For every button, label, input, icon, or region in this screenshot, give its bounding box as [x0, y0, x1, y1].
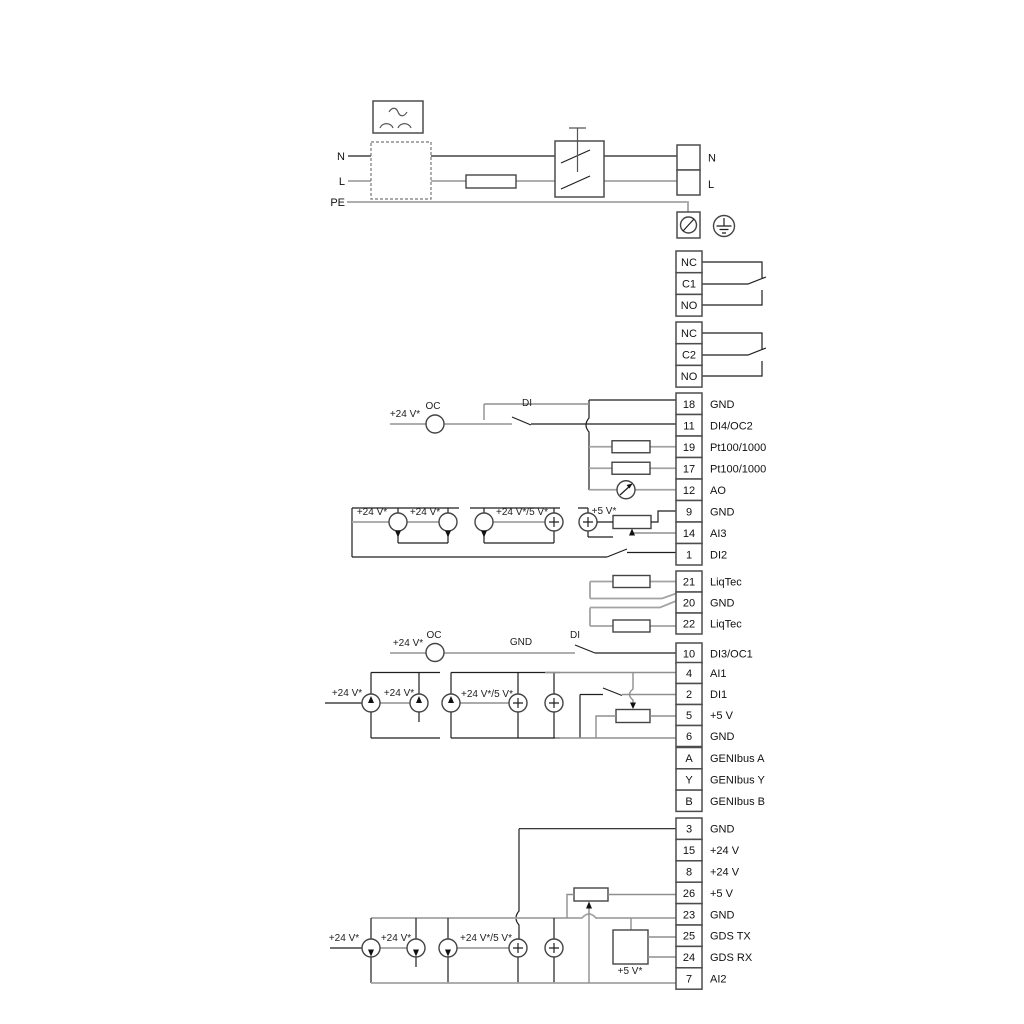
terminal-label: GND	[710, 824, 735, 836]
terminal-number: A	[685, 753, 693, 765]
terminal-number: 20	[683, 598, 695, 610]
relay1-contact	[702, 262, 766, 305]
terminal-number: 19	[683, 442, 695, 454]
power-label-n_right: N	[708, 153, 716, 165]
di3-switch	[575, 645, 676, 653]
down-arrowhead	[395, 531, 401, 538]
terminal-number: 14	[683, 528, 695, 540]
liqtec-resistor-22	[613, 620, 650, 632]
wire-labels: NLPENL+24 V*OCDI+24 V*+24 V*+24 V*/5 V*+…	[329, 151, 716, 977]
terminal-strip: 18GND11DI4/OC219Pt100/100017Pt100/100012…	[676, 145, 766, 989]
terminal-number: Y	[685, 774, 693, 786]
terminal-number: 21	[683, 577, 695, 589]
wire-label-v24_5: +24 V*/5 V*	[460, 933, 512, 944]
wiper-arrowhead	[630, 703, 636, 710]
open-collector-circle	[426, 415, 444, 433]
wire-label-v24_5: +24 V*/5 V*	[496, 507, 548, 518]
relay2-contact	[702, 333, 766, 376]
wiper-arrowhead	[586, 902, 592, 909]
wire-label-oc: OC	[427, 630, 442, 641]
terminal-label: AI3	[710, 528, 727, 540]
terminal-label: +24 V	[710, 845, 740, 857]
terminal-label: Pt100/1000	[710, 463, 766, 475]
di4-section	[390, 400, 676, 499]
optional-device-dashed-box	[371, 142, 431, 199]
wire-label-v24: +24 V*	[393, 638, 423, 649]
gnd3-wire	[516, 829, 676, 939]
terminal-label: LiqTec	[710, 619, 742, 631]
terminal-number: 6	[686, 731, 692, 743]
terminal-number: 5	[686, 710, 692, 722]
terminal-number: 18	[683, 399, 695, 411]
stubs	[416, 918, 554, 983]
relay-terminal-number: C1	[682, 279, 696, 291]
wire-label-v24_5: +24 V*/5 V*	[461, 689, 513, 700]
relay-terminal-number: NO	[681, 300, 698, 312]
terminal-number: 15	[683, 845, 695, 857]
mains-terminal-l	[677, 170, 700, 195]
terminal-label: +5 V	[710, 888, 734, 900]
wiper-drop	[630, 673, 634, 704]
liqtec-section	[590, 576, 676, 633]
relay-terminal-number: NO	[681, 371, 698, 383]
terminal-number: 9	[686, 506, 692, 518]
terminal-label: DI2	[710, 549, 727, 561]
pt100-resistor-2	[612, 462, 650, 474]
bracket-a	[371, 673, 440, 739]
potentiometer	[574, 888, 608, 901]
terminal-label: GND	[710, 506, 735, 518]
wire-label-v24: +24 V*	[381, 933, 411, 944]
terminal-number: 26	[683, 888, 695, 900]
relay-contacts	[702, 262, 766, 376]
gds-sensor-box	[613, 930, 648, 964]
wire-label-v5: +5 V*	[592, 506, 617, 517]
terminal-label: AI2	[710, 974, 727, 986]
terminal-number: 25	[683, 931, 695, 943]
terminal-label: GDS TX	[710, 931, 751, 943]
terminal-label: DI3/OC1	[710, 648, 753, 660]
terminal-label: GND	[710, 909, 735, 921]
current-source-down	[475, 513, 493, 531]
terminal-label: GDS RX	[710, 952, 753, 964]
terminal-number: 22	[683, 619, 695, 631]
terminal-label: GND	[710, 598, 735, 610]
power-label-pe: PE	[330, 197, 345, 209]
open-collector-circle	[426, 644, 444, 662]
terminal-label: GND	[710, 731, 735, 743]
terminal-number: 8	[686, 867, 692, 879]
rail-918	[371, 914, 676, 918]
power-label-l_left: L	[339, 176, 345, 188]
current-source-down	[439, 513, 457, 531]
current-source-down	[389, 513, 407, 531]
wire-label-v5: +5 V*	[618, 966, 643, 977]
wiper-arrowhead	[629, 529, 635, 536]
terminal-label: GENIbus A	[710, 753, 765, 765]
power-label-n_left: N	[337, 151, 345, 163]
terminal-number: 2	[686, 689, 692, 701]
terminal-number: 23	[683, 909, 695, 921]
bracket-b	[451, 673, 560, 739]
di4-switch	[512, 417, 676, 425]
ai2-section	[330, 829, 676, 983]
terminal-number: 1	[686, 549, 692, 561]
terminal-label: +5 V	[710, 710, 734, 722]
fuse	[466, 175, 516, 188]
gds-wires	[648, 937, 676, 957]
terminal-label: GENIbus Y	[710, 774, 765, 786]
down-arrowhead	[481, 531, 487, 538]
terminal-label: AI1	[710, 668, 727, 680]
terminal-label: LiqTec	[710, 577, 742, 589]
terminal-number: 24	[683, 952, 695, 964]
terminal-number: B	[685, 796, 692, 808]
terminal-label: DI1	[710, 689, 727, 701]
di-bracket	[484, 404, 589, 420]
terminal-label: GENIbus B	[710, 796, 765, 808]
liqtec-resistor-21	[613, 576, 650, 588]
wire-label-v24: +24 V*	[357, 507, 387, 518]
wire-label-di: DI	[570, 630, 580, 641]
potentiometer	[613, 516, 651, 529]
relay-terminal-number: NC	[681, 257, 697, 269]
terminal-number: 4	[686, 668, 692, 680]
wire-label-gnd: GND	[510, 637, 532, 648]
mains-terminal-n	[677, 145, 700, 170]
di3-section	[390, 644, 676, 662]
potentiometer	[616, 710, 650, 723]
terminal-number: 3	[686, 824, 692, 836]
wire-label-v24: +24 V*	[384, 688, 414, 699]
terminal-number: 12	[683, 485, 695, 497]
pt100-resistor-1	[612, 441, 650, 453]
wire-label-v24: +24 V*	[332, 688, 362, 699]
ai1-section	[325, 673, 676, 739]
down-arrowhead	[445, 531, 451, 538]
power-label-l_right: L	[708, 179, 714, 191]
terminal-label: Pt100/1000	[710, 442, 766, 454]
ac-supply-symbol-box	[373, 101, 423, 133]
relay-terminal-number: C2	[682, 350, 696, 362]
wire-label-v24: +24 V*	[329, 933, 359, 944]
wire-label-v24: +24 V*	[410, 507, 440, 518]
wire-label-oc: OC	[426, 401, 441, 412]
terminal-number: 17	[683, 463, 695, 475]
relay-terminal-number: NC	[681, 328, 697, 340]
terminal-label: DI4/OC2	[710, 420, 753, 432]
wire-label-v24: +24 V*	[390, 409, 420, 420]
terminal-number: 11	[683, 420, 694, 432]
di2-switch	[607, 549, 676, 557]
terminal-label: GND	[710, 399, 735, 411]
terminal-label: AO	[710, 485, 726, 497]
terminal-label: +24 V	[710, 867, 740, 879]
terminal-number: 7	[686, 974, 692, 986]
terminal-number: 10	[683, 648, 695, 660]
wiring-diagram: 18GND11DI4/OC219Pt100/100017Pt100/100012…	[0, 0, 1024, 1024]
wire-label-di: DI	[522, 398, 532, 409]
pe-wire	[347, 202, 688, 212]
